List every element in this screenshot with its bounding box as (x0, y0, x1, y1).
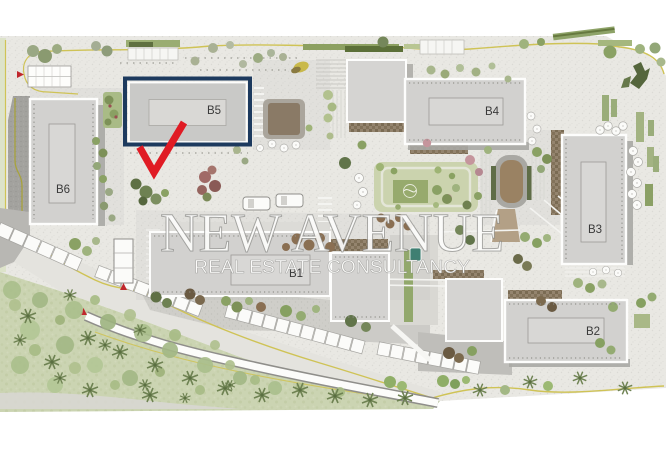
svg-text:REAL ESTATE CONSULTANCY: REAL ESTATE CONSULTANCY (194, 256, 470, 277)
svg-text:NEW AVENUE: NEW AVENUE (160, 202, 504, 263)
svg-text:B5: B5 (207, 105, 221, 117)
svg-text:B4: B4 (485, 106, 500, 118)
svg-text:B6: B6 (56, 184, 70, 196)
svg-text:B3: B3 (588, 224, 602, 236)
svg-text:B2: B2 (586, 326, 600, 338)
